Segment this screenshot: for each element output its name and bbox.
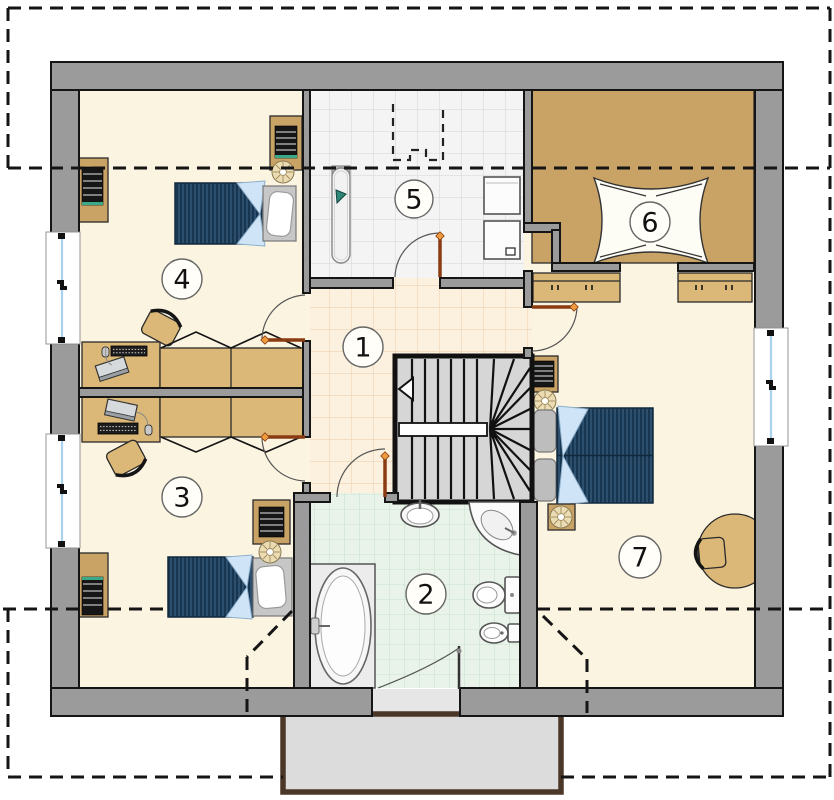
wall-bath-top-left bbox=[294, 493, 330, 502]
wall-wardrobe-room7-right bbox=[678, 263, 754, 271]
dryer bbox=[484, 221, 520, 259]
room-label-bathroom: 2 bbox=[406, 574, 446, 614]
wall-laundry-hall-left bbox=[310, 278, 393, 288]
room-number: 6 bbox=[641, 208, 658, 239]
desk-room3 bbox=[82, 397, 160, 442]
stairs bbox=[395, 356, 532, 502]
wall-room34-hall bbox=[303, 341, 310, 437]
mouse-room3 bbox=[145, 425, 152, 435]
pillow bbox=[534, 410, 556, 452]
window-left-room3 bbox=[46, 434, 80, 548]
room-number: 5 bbox=[405, 185, 422, 216]
shelf-cab-room3-left bbox=[78, 553, 108, 617]
balcony-doorway-floor bbox=[373, 689, 459, 715]
washing-machine bbox=[484, 177, 520, 214]
room-label-bedroom3: 3 bbox=[162, 477, 202, 517]
stairs-handrail bbox=[399, 423, 487, 436]
bedside-lamp bbox=[534, 390, 556, 412]
floor-bathroom-doorway bbox=[330, 493, 385, 502]
chair-room7 bbox=[694, 537, 726, 569]
bedside-lamp bbox=[259, 541, 281, 563]
appliance-handle bbox=[506, 248, 515, 255]
room-label-bedroom7: 7 bbox=[619, 536, 661, 578]
room-number: 2 bbox=[417, 580, 434, 611]
wall-room4-hall bbox=[303, 90, 310, 293]
desk-room4 bbox=[82, 342, 160, 388]
nightstand-bottom bbox=[548, 504, 575, 530]
bedside-lamp bbox=[550, 506, 572, 528]
pillow bbox=[534, 459, 556, 501]
bathtub bbox=[310, 564, 375, 688]
wall-laundry-hall-right bbox=[440, 278, 532, 288]
balcony-deck bbox=[283, 714, 561, 792]
wall-bath-left bbox=[294, 502, 310, 688]
exterior-wall-left bbox=[51, 90, 79, 716]
floor-plan-drawing: 1 2 3 4 5 6 7 bbox=[0, 0, 834, 800]
room-label-laundry: 5 bbox=[395, 180, 433, 218]
wall-hall-room7-upper bbox=[524, 271, 532, 307]
room-number: 1 bbox=[354, 333, 371, 364]
dresser-left bbox=[533, 273, 620, 302]
room-number: 3 bbox=[173, 483, 190, 514]
wall-bath-right bbox=[520, 502, 537, 688]
dresser-right bbox=[678, 273, 752, 302]
keyboard-room4 bbox=[111, 346, 147, 356]
wall-room3-room4 bbox=[79, 388, 303, 397]
wall-wardrobe-room7-left bbox=[552, 263, 620, 271]
room-label-hall: 1 bbox=[343, 327, 383, 367]
window-right-room7 bbox=[754, 328, 788, 446]
keyboard-room3 bbox=[98, 423, 138, 434]
wall-bath-top-right bbox=[385, 493, 398, 502]
room-number: 7 bbox=[631, 543, 648, 574]
exterior-wall-bottom-left bbox=[51, 688, 372, 716]
floor-plan: 1 2 3 4 5 6 7 bbox=[0, 0, 834, 800]
exterior-wall-bottom-right bbox=[460, 688, 783, 716]
wall-hall-room7-lower bbox=[524, 348, 532, 358]
room-label-bedroom4: 4 bbox=[162, 259, 202, 299]
ironing-board bbox=[332, 166, 350, 263]
window-left-room4 bbox=[46, 232, 80, 344]
bed-room4 bbox=[175, 181, 296, 246]
bidet bbox=[480, 623, 520, 643]
room-label-wardrobe: 6 bbox=[630, 202, 670, 242]
wall-laundry-wardrobe bbox=[524, 90, 532, 230]
bedside-lamp bbox=[272, 161, 294, 183]
room-number: 4 bbox=[173, 265, 190, 296]
bathtub-faucet bbox=[311, 618, 319, 634]
exterior-wall-top bbox=[51, 62, 783, 90]
